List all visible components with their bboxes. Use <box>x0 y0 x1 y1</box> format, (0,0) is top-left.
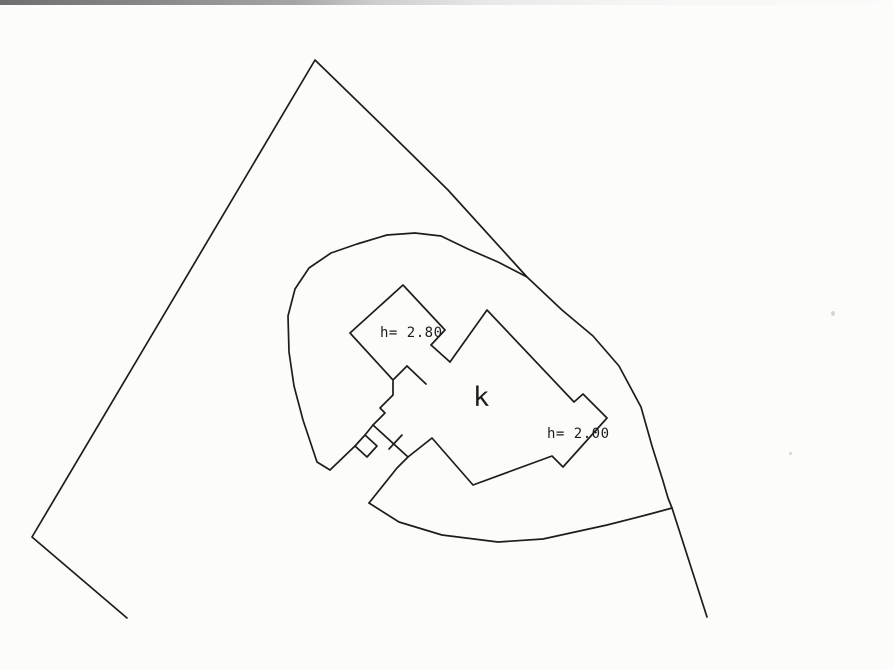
building-diamond-bump <box>355 435 377 457</box>
building-label: k <box>473 382 489 413</box>
enclosure-curve-lower <box>369 503 672 542</box>
height-annotation-nw: h= 2.80 <box>380 325 443 341</box>
parcel-boundary <box>32 60 707 618</box>
enclosure-curve-upper <box>288 233 527 470</box>
building-corridor-upper-wall <box>431 345 450 362</box>
building-corridor-lower-wall <box>407 366 426 384</box>
scanned-site-plan: h= 2.80 h= 2.00 k <box>0 0 893 670</box>
site-plan-drawing: h= 2.80 h= 2.00 k <box>0 0 893 670</box>
scan-speck <box>789 452 792 455</box>
building-neck-staircase <box>365 381 393 435</box>
scan-speck <box>831 311 835 316</box>
building-neck-line <box>373 425 408 457</box>
height-annotation-east: h= 2.00 <box>547 426 610 442</box>
plan-line-layer <box>32 60 707 618</box>
